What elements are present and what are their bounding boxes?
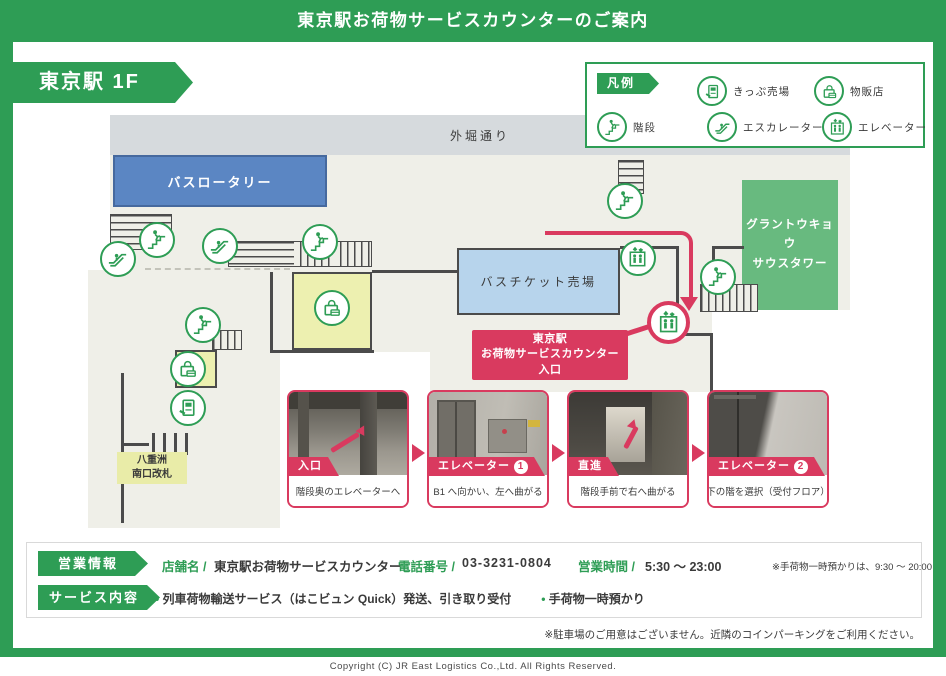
entrance-callout: 東京駅 お荷物サービスカウンター 入口: [472, 330, 628, 380]
shop-name-label: 店舗名 /: [162, 556, 206, 575]
ticket-machine-icon: [697, 76, 727, 106]
hours-label: 営業時間 /: [578, 556, 635, 575]
legend-label: 階段: [633, 120, 656, 135]
service-item: 手荷物一時預かり: [541, 590, 645, 607]
shop-name-value: 東京駅お荷物サービスカウンター: [214, 556, 402, 575]
stairs-icon: [700, 259, 736, 295]
page-title: 東京駅お荷物サービスカウンターのご案内: [0, 0, 946, 42]
service-info-flag: サービス内容: [38, 585, 160, 610]
phone-label: 電話番号 /: [398, 556, 455, 575]
legend-item-ticket-office: きっぷ売場: [697, 76, 790, 106]
stairs-icon: [185, 307, 221, 343]
business-info-flag: 営業情報: [38, 551, 148, 576]
escalator-icon: [707, 112, 737, 142]
service-item: 列車荷物輸送サービス（はこビュン Quick）発送、引き取り受付: [155, 590, 511, 607]
ticket-machine-icon: [170, 390, 206, 426]
next-step-arrow-icon: [692, 444, 705, 462]
wall: [121, 373, 124, 523]
frame-left: [0, 42, 13, 648]
route-photo-card: 直進 階段手前で右へ曲がる: [567, 390, 689, 508]
phone-value: 03-3231-0804: [462, 556, 552, 570]
legend-title-flag: 凡例: [597, 73, 659, 94]
escalator-icon: [202, 228, 238, 264]
copyright-bar: Copyright (C) JR East Logistics Co.,Ltd.…: [0, 657, 946, 676]
elevator-icon: [822, 112, 852, 142]
route-arrow-line: [545, 231, 693, 301]
legend-item-shop: 物販店: [814, 76, 885, 106]
photo-caption: 下の階を選択（受付フロア）: [709, 476, 827, 506]
legend-item-stairs: 階段: [597, 112, 656, 142]
stairs-icon: [139, 222, 175, 258]
frame-bottom: [0, 648, 946, 657]
photo-step-tag: エレベーター2: [709, 457, 825, 476]
entrance-elevator-icon: [647, 301, 690, 344]
stairs-icon: [597, 112, 627, 142]
street-label: 外堀通り: [450, 127, 510, 144]
stairs-icon: [302, 224, 338, 260]
photo-step-tag: エレベーター1: [429, 457, 545, 476]
route-photo-card: 入口 階段奥のエレベーターへ: [287, 390, 409, 508]
shop-bag-icon: [814, 76, 844, 106]
yaesu-south-gate-label: 八重洲 南口改札: [117, 452, 187, 484]
dashed-guide-line: [145, 268, 290, 270]
legend-label: きっぷ売場: [733, 84, 790, 99]
photo-caption: 階段奥のエレベーターへ: [289, 476, 407, 506]
legend-item-escalator: エスカレーター: [707, 112, 824, 142]
wall: [270, 350, 374, 353]
legend-label: エレベーター: [858, 120, 927, 135]
wall: [270, 272, 273, 352]
step-number-badge: 1: [514, 460, 528, 474]
frame-right: [933, 42, 946, 648]
stairs-icon: [607, 183, 643, 219]
guide-poster: 東京駅お荷物サービスカウンターのご案内 東京駅 1F 凡例 きっぷ売場 物販店 …: [0, 0, 946, 676]
legend-label: 物販店: [850, 84, 885, 99]
hours-value: 5:30 ～ 23:00: [645, 556, 721, 575]
shop-bag-icon: [314, 290, 350, 326]
copyright-text: Copyright (C) JR East Logistics Co.,Ltd.…: [330, 661, 617, 672]
step-number-badge: 2: [794, 460, 808, 474]
wall: [710, 333, 713, 392]
next-step-arrow-icon: [412, 444, 425, 462]
route-photo-card: エレベーター1 B1 へ向かい、左へ曲がる: [427, 390, 549, 508]
elevator-icon: [620, 240, 656, 276]
floor-label-banner: 東京駅 1F: [13, 62, 193, 103]
route-photo-card: エレベーター2 下の階を選択（受付フロア）: [707, 390, 829, 508]
escalator-icon: [100, 241, 136, 277]
shop-bag-icon: [170, 351, 206, 387]
service-list: 列車荷物輸送サービス（はこビュン Quick）発送、引き取り受付 手荷物一時預か…: [155, 590, 645, 607]
hours-note: ※手荷物一時預かりは、9:30 ～ 20:00: [772, 559, 932, 573]
legend-box: 凡例 きっぷ売場 物販店 階段 エスカレーター エレベーター: [585, 62, 925, 148]
next-step-arrow-icon: [552, 444, 565, 462]
wall: [712, 246, 744, 249]
ticket-gate-bar: [123, 443, 149, 446]
legend-label: エスカレーター: [743, 120, 824, 135]
bus-rotary-area: バスロータリー: [113, 155, 327, 207]
parking-note: ※駐車場のご用意はございません。近隣のコインパーキングをご利用ください。: [544, 627, 920, 642]
header-bar: 東京駅お荷物サービスカウンターのご案内: [0, 0, 946, 42]
legend-item-elevator: エレベーター: [822, 112, 927, 142]
photo-caption: B1 へ向かい、左へ曲がる: [429, 476, 547, 506]
photo-caption: 階段手前で右へ曲がる: [569, 476, 687, 506]
wall: [372, 270, 457, 273]
escalator-structure: [228, 241, 372, 267]
